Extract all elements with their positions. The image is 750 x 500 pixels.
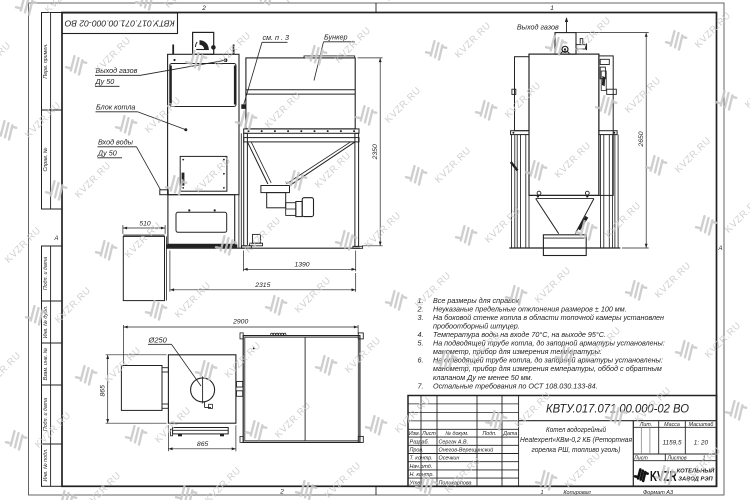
svg-text:Выход газов: Выход газов — [517, 23, 559, 32]
svg-text:Копировал: Копировал — [563, 490, 590, 496]
svg-text:3.: 3. — [418, 313, 424, 322]
svg-text:2350: 2350 — [372, 144, 379, 160]
svg-text:1: 20: 1: 20 — [694, 440, 709, 447]
svg-text:Лист: Лист — [633, 456, 648, 462]
svg-text:Сергач А.В.: Сергач А.В. — [439, 439, 469, 445]
svg-text:865: 865 — [100, 385, 107, 397]
svg-text:Нач.отд.: Нач.отд. — [410, 464, 433, 470]
svg-text:Осечкин: Осечкин — [439, 456, 460, 462]
svg-text:см. п . 3: см. п . 3 — [263, 33, 289, 42]
svg-text:Блок котла: Блок котла — [96, 103, 135, 112]
svg-text:горелка РШ, топливо уголь): горелка РШ, топливо уголь) — [532, 447, 621, 454]
svg-text:Утв.: Утв. — [409, 480, 422, 486]
svg-text:Т. контр.: Т. контр. — [410, 456, 433, 462]
svg-text:5.: 5. — [418, 339, 424, 348]
svg-text:Дата: Дата — [502, 431, 517, 437]
svg-text:7.: 7. — [418, 381, 424, 390]
svg-text:Справ. №: Справ. № — [43, 147, 49, 171]
svg-text:Онегов-Верещинский: Онегов-Верещинский — [439, 447, 494, 454]
svg-text:Вход воды: Вход воды — [98, 138, 134, 147]
svg-text:2900: 2900 — [232, 319, 248, 326]
svg-text:6.: 6. — [418, 356, 424, 365]
svg-text:Бункер: Бункер — [324, 33, 347, 42]
svg-text:Масса: Масса — [664, 422, 680, 428]
svg-text:Взам. инв. №: Взам. инв. № — [43, 347, 49, 380]
svg-text:№ докум.: № докум. — [445, 431, 468, 437]
svg-text:Формат А3: Формат А3 — [643, 490, 674, 496]
svg-text:Подп.: Подп. — [482, 431, 496, 437]
svg-text:Разраб.: Разраб. — [410, 439, 430, 445]
svg-text:Heatexpert«КВм-0,2 КБ (Ретортн: Heatexpert«КВм-0,2 КБ (Ретортная — [520, 437, 632, 444]
svg-text:КВТУ.017.071.00.000-02 ВО: КВТУ.017.071.00.000-02 ВО — [64, 19, 175, 28]
svg-text:А: А — [717, 246, 722, 252]
svg-text:Перв. примен.: Перв. примен. — [43, 43, 49, 78]
svg-text:Ду 50: Ду 50 — [95, 77, 115, 86]
svg-text:1159,5: 1159,5 — [662, 440, 682, 447]
svg-text:1: 1 — [540, 490, 543, 496]
svg-text:Изм.: Изм. — [409, 431, 420, 437]
svg-text:Подп. и дата: Подп. и дата — [43, 257, 49, 290]
svg-text:Ду 50: Ду 50 — [97, 149, 117, 158]
svg-text:865: 865 — [197, 441, 209, 448]
svg-text:Остальные требования по ОСТ 10: Остальные требования по ОСТ 108.030.133-… — [433, 381, 598, 390]
svg-text:2650: 2650 — [638, 131, 645, 147]
svg-text:1: 1 — [550, 5, 554, 12]
svg-text:Лист: Лист — [421, 431, 436, 437]
svg-text:Ø250: Ø250 — [148, 336, 168, 345]
svg-text:Н. контр.: Н. контр. — [410, 472, 434, 478]
svg-text:Подп. и дата: Подп. и дата — [43, 398, 49, 431]
svg-text:2: 2 — [279, 489, 284, 496]
svg-text:Котел водогрейный: Котел водогрейный — [546, 426, 606, 434]
svg-text:Инв. № подл.: Инв. № подл. — [43, 449, 49, 482]
svg-text:2315: 2315 — [254, 282, 270, 289]
svg-text:2: 2 — [201, 5, 206, 12]
svg-text:Пров.: Пров. — [410, 448, 424, 454]
svg-text:Инв. № дубл.: Инв. № дубл. — [43, 306, 49, 339]
svg-text:Листов: Листов — [666, 456, 687, 462]
svg-text:Масштаб: Масштаб — [689, 422, 715, 428]
svg-text:1390: 1390 — [294, 261, 309, 268]
svg-text:А: А — [53, 236, 58, 242]
